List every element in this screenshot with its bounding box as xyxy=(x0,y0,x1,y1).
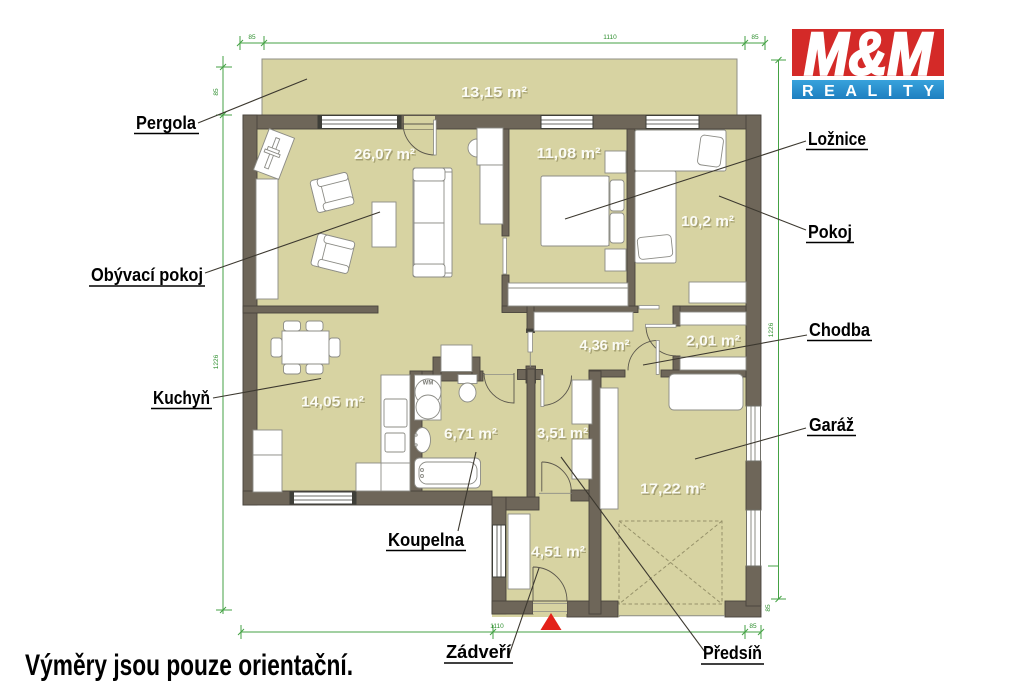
svg-text:2,01 m²: 2,01 m² xyxy=(686,333,740,350)
svg-text:4,36 m²: 4,36 m² xyxy=(580,337,630,354)
svg-text:10,2 m²: 10,2 m² xyxy=(681,213,734,230)
svg-text:85: 85 xyxy=(749,623,757,630)
svg-text:Předsíň: Předsíň xyxy=(703,643,762,663)
svg-text:1110: 1110 xyxy=(490,623,504,630)
svg-text:4,51 m²: 4,51 m² xyxy=(531,544,585,561)
svg-text:11,08 m²: 11,08 m² xyxy=(537,145,601,162)
svg-text:M&M: M&M xyxy=(804,21,934,88)
svg-text:3,51 m²: 3,51 m² xyxy=(537,425,588,442)
svg-text:13,15 m²: 13,15 m² xyxy=(461,84,527,101)
svg-text:85: 85 xyxy=(765,604,772,612)
svg-text:14,05 m²: 14,05 m² xyxy=(301,394,364,411)
svg-text:6,71 m²: 6,71 m² xyxy=(444,426,497,443)
svg-text:Ložnice: Ložnice xyxy=(808,129,866,149)
svg-text:Chodba: Chodba xyxy=(809,320,871,340)
svg-text:Pergola: Pergola xyxy=(136,113,197,133)
svg-text:85: 85 xyxy=(751,34,759,41)
svg-text:85: 85 xyxy=(248,34,256,41)
svg-text:1226: 1226 xyxy=(213,354,220,369)
svg-text:Kuchyň: Kuchyň xyxy=(153,388,210,408)
svg-text:Výměry jsou pouze orientační.: Výměry jsou pouze orientační. xyxy=(25,649,353,682)
svg-text:Garáž: Garáž xyxy=(809,415,854,435)
svg-text:1110: 1110 xyxy=(603,34,617,41)
svg-text:Obývací pokoj: Obývací pokoj xyxy=(91,265,203,285)
svg-text:Pokoj: Pokoj xyxy=(808,222,852,242)
svg-text:26,07 m²: 26,07 m² xyxy=(354,146,415,163)
svg-text:17,22 m²: 17,22 m² xyxy=(640,481,705,498)
svg-text:WM: WM xyxy=(423,381,434,387)
svg-text:Zádveří: Zádveří xyxy=(446,642,512,662)
svg-text:1226: 1226 xyxy=(768,322,775,337)
svg-text:85: 85 xyxy=(213,88,220,96)
svg-text:Koupelna: Koupelna xyxy=(388,530,465,550)
